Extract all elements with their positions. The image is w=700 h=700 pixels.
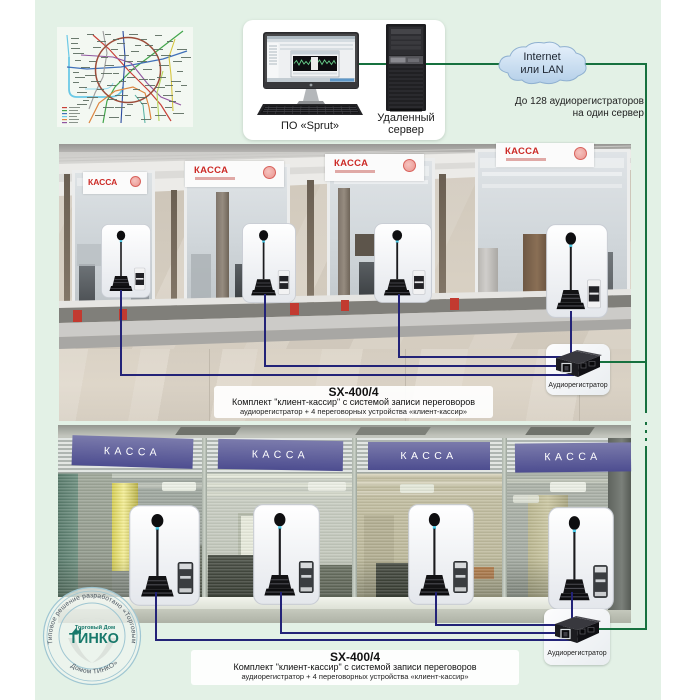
svg-text:или LAN: или LAN: [520, 64, 563, 76]
svg-text:Internet: Internet: [523, 51, 560, 63]
